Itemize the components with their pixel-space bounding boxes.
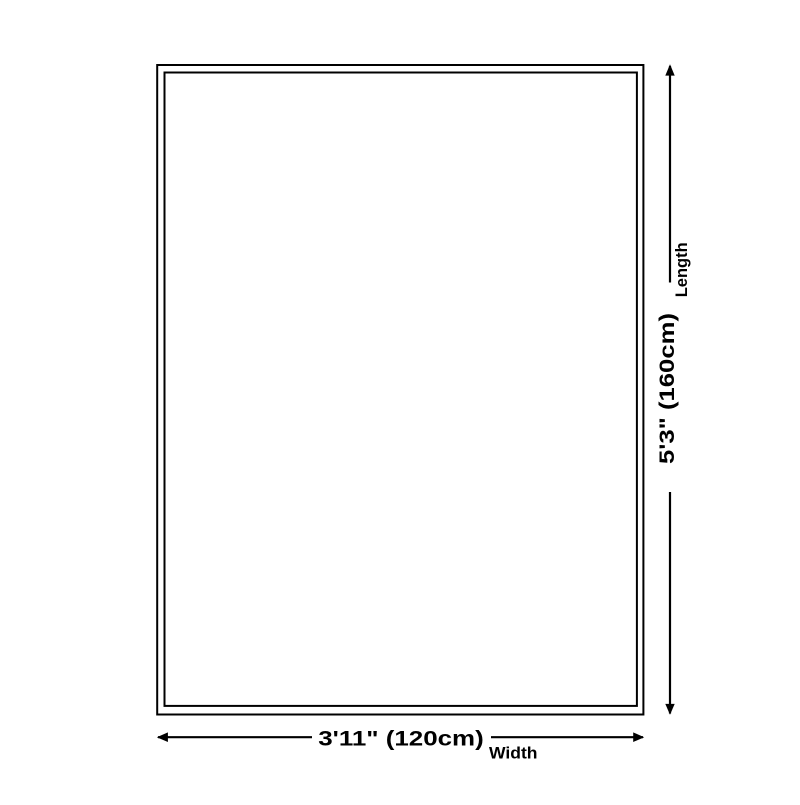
svg-text:Length: Length (673, 242, 691, 297)
svg-text:Width: Width (489, 745, 538, 763)
svg-text:3'11" (120cm): 3'11" (120cm) (318, 727, 484, 751)
svg-text:5'3" (160cm): 5'3" (160cm) (655, 313, 679, 464)
